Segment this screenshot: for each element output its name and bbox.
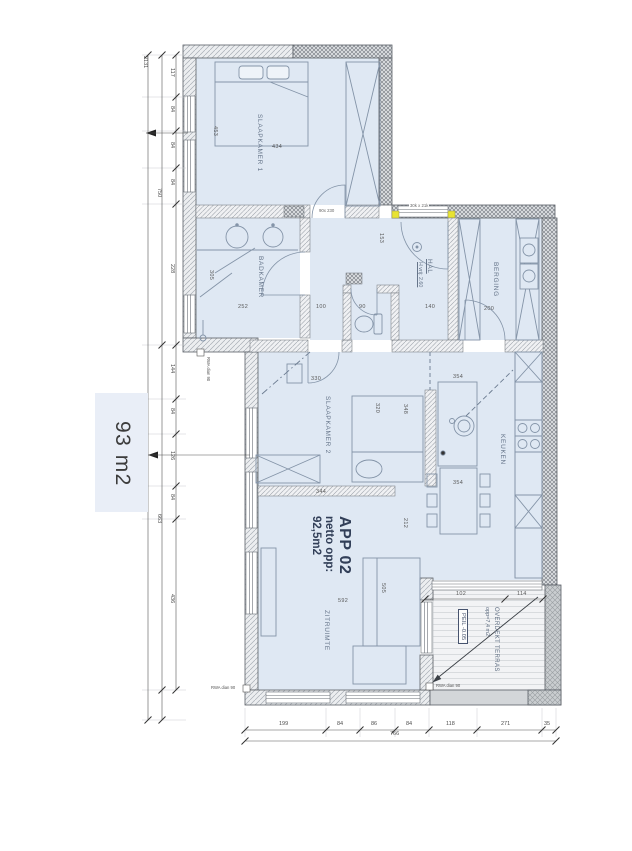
terras-area-note: opp=7,4 m2: [482, 607, 491, 672]
room-label-slaapkamer2: SLAAPKAMER 2: [324, 396, 331, 454]
lintel-note: 30k x 21k: [409, 204, 429, 209]
chain-left-seg-9: 436: [169, 594, 175, 603]
chain-bottom-seg-5: 271: [501, 721, 510, 727]
room-label-berging: BERGING: [492, 262, 499, 297]
apartment-netto-value: 92,5m2: [309, 516, 322, 574]
rwa-terras-note: RWA dian 90: [436, 684, 460, 689]
room-label-terras: OVERDEKT TERRAS: [491, 607, 500, 672]
floorplan-page: 93 m2 SLAAPKAMER 1 BADKAMER HAL H vrij: …: [0, 0, 632, 851]
apartment-name: APP 02: [336, 516, 353, 574]
chain-left-seg-1: 84: [169, 106, 175, 112]
chain-left-mid-0: 750: [156, 188, 162, 197]
dim-hal-door: 153: [378, 233, 384, 243]
room-label-keuken: KEUKEN: [499, 434, 506, 465]
apartment-netto-label: netto opp:: [322, 516, 336, 574]
dim-zit-width: 592: [338, 598, 348, 604]
floor-zitruimte: [258, 580, 420, 690]
dim-sk2-width: 344: [316, 489, 326, 495]
terras-label-block: OVERDEKT TERRAS opp=7,4 m2: [482, 607, 500, 672]
dim-terras-w2: 114: [517, 591, 527, 597]
dim-bad-width: 252: [238, 304, 248, 310]
dim-zit-h2: 212: [402, 518, 408, 528]
dim-berging-door: 200: [484, 306, 494, 312]
chain-left-seg-2: 84: [169, 142, 175, 148]
chain-left-mid-1: 663: [156, 514, 162, 523]
chain-left-seg-6: 84: [169, 408, 175, 414]
dim-zit-h1: 505: [380, 583, 386, 593]
dim-keuken-w2: 354: [453, 480, 463, 486]
floor-slaapkamer2-keuken: [258, 352, 542, 486]
dim-keuken-w1: 354: [453, 374, 463, 380]
room-label-zitruimte: ZITRUIMTE: [323, 610, 330, 651]
dim-hal-w1: 100: [316, 304, 326, 310]
chain-bottom-seg-0: 199: [279, 721, 288, 727]
chain-left-seg-5: 144: [169, 364, 175, 373]
dim-sk2-height: 320: [374, 403, 380, 413]
side-area-box: 93 m2: [95, 393, 148, 512]
room-label-badkamer: BADKAMER: [257, 256, 264, 298]
dim-wc-width: 90: [359, 304, 366, 310]
door-size-note: 90x 230: [318, 209, 335, 214]
side-area-label: 93 m2: [111, 421, 134, 487]
chain-bottom-seg-1: 84: [337, 721, 343, 727]
chain-left-seg-8: 84: [169, 494, 175, 500]
rwa-floor-note: RWA dian 90: [211, 686, 235, 691]
room-label-hal: HAL: [426, 259, 433, 274]
rwa-wall-note: RWA dian 90: [205, 357, 210, 381]
dim-sk1-height: 453: [212, 126, 218, 136]
chain-left-seg-7: 126: [169, 451, 175, 460]
chain-bottom-seg-6: 35: [544, 721, 550, 727]
hal-height-note: H vrij: 2.60: [416, 262, 422, 287]
room-label-slaapkamer1: SLAAPKAMER 1: [256, 114, 263, 172]
dim-terras-w1: 102: [456, 591, 466, 597]
apartment-title-block: APP 02 netto opp: 92,5m2: [309, 516, 353, 574]
dim-hal-w2: 140: [425, 304, 435, 310]
chain-bottom-seg-3: 84: [406, 721, 412, 727]
chain-left-seg-0: 117: [169, 68, 175, 77]
dim-pass-height: 348: [402, 404, 408, 414]
dim-sk2-door: 330: [311, 376, 321, 382]
dim-sk1-width: 434: [272, 144, 282, 150]
chain-left-seg-3: 84: [169, 179, 175, 185]
chain-left-seg-4: 228: [169, 264, 175, 273]
terras-level-note: PEIL -0.05: [458, 609, 468, 644]
chain-bottom-seg-4: 118: [446, 721, 455, 727]
chain-bottom-seg-2: 86: [371, 721, 377, 727]
chain-left-total: 2131: [142, 56, 148, 68]
chain-bottom-total: 766: [390, 731, 399, 737]
dim-bad-height: 305: [208, 270, 214, 280]
floor-keuken-zit: [258, 486, 542, 580]
